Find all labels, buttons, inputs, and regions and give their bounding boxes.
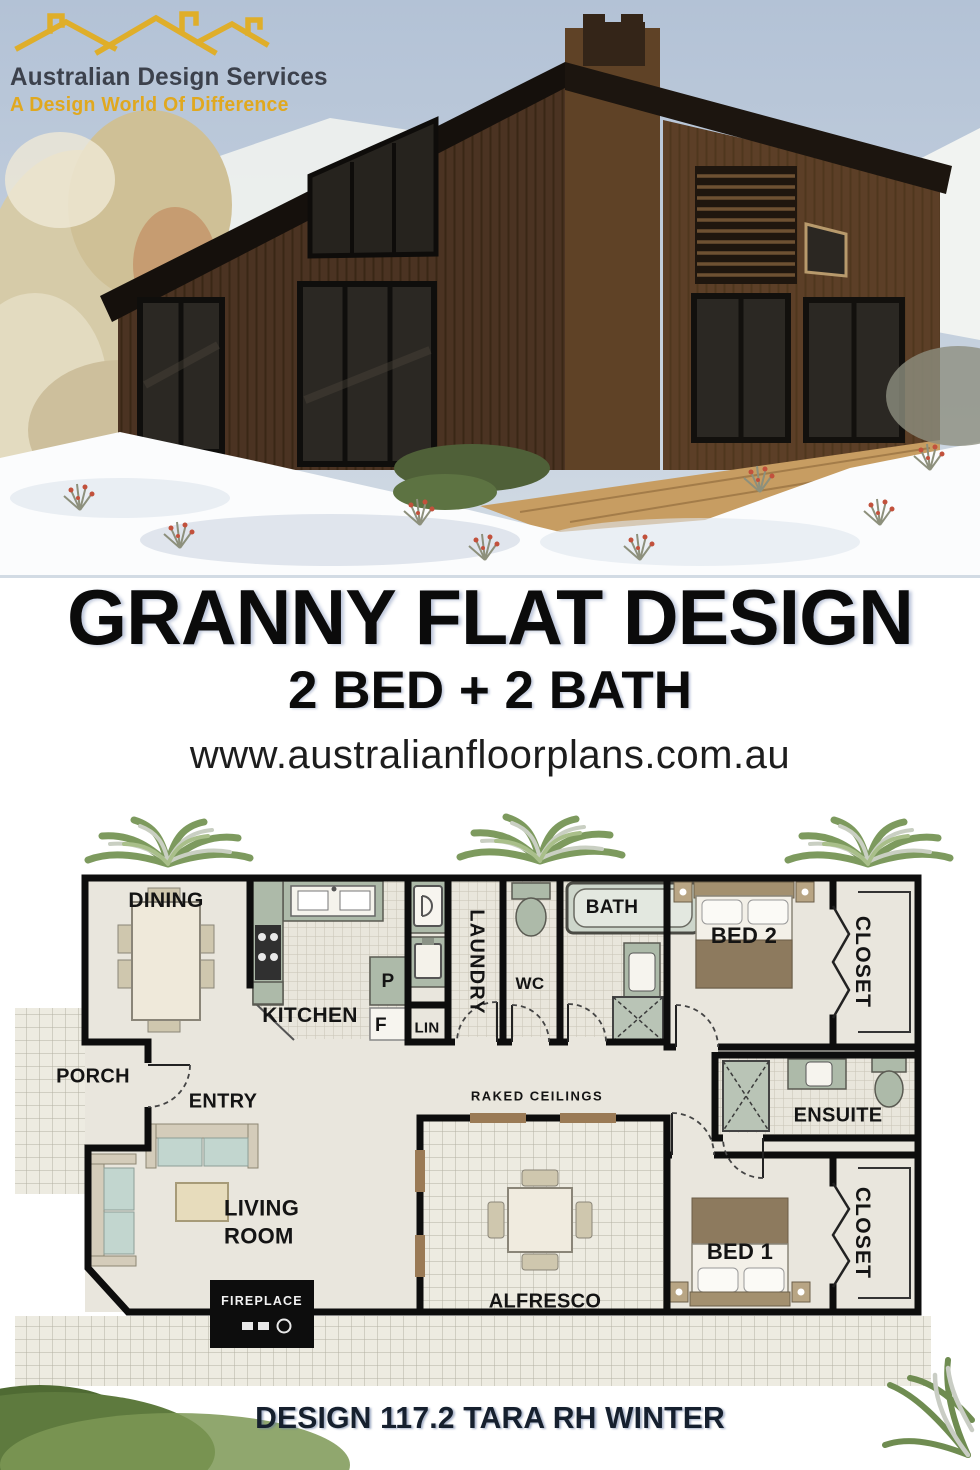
room-label-dining: DINING <box>128 889 203 913</box>
outdoor-paving <box>15 1316 931 1386</box>
laundry-tub <box>415 944 441 978</box>
small-window <box>806 224 846 276</box>
fireplace <box>210 1280 314 1348</box>
label-porch: PORCH <box>56 1066 130 1089</box>
room-label-wc: WC <box>516 974 545 994</box>
dryer <box>414 886 442 926</box>
slat-vent <box>695 166 797 284</box>
website-url: www.australianfloorplans.com.au <box>0 735 980 775</box>
ensuite-toilet <box>872 1058 906 1072</box>
poster-title: GRANNY FLAT DESIGN <box>5 578 975 656</box>
porch-slab <box>15 1008 85 1194</box>
sofa <box>90 1160 104 1260</box>
brand-logo: Australian Design Services A Design Worl… <box>10 6 340 117</box>
room-label-living: LIVING ROOM <box>224 1195 356 1250</box>
room-label-laundry: LAUNDRY <box>465 909 488 1014</box>
brand-tagline: A Design World Of Difference <box>10 94 330 117</box>
room-label-kitchen: KITCHEN <box>262 1004 357 1028</box>
poster: Australian Design Services A Design Worl… <box>0 0 980 1470</box>
room-label-bath: BATH <box>586 897 639 919</box>
label-closet-bed2: CLOSET <box>850 916 874 1008</box>
coffee-table <box>176 1183 228 1221</box>
room-label-ensuite: ENSUITE <box>794 1105 883 1128</box>
room-label-bed1: BED 1 <box>707 1239 773 1265</box>
sofa <box>150 1124 254 1138</box>
room-label-bed2: BED 2 <box>711 923 777 949</box>
label-fridge: F <box>375 1015 387 1037</box>
label-pantry: P <box>382 971 395 993</box>
label-entry: ENTRY <box>189 1091 258 1114</box>
label-closet-bed1: CLOSET <box>850 1187 874 1279</box>
label-linen: LIN <box>414 1020 439 1037</box>
rooflines-icon <box>10 6 280 58</box>
bath-shower <box>613 997 663 1041</box>
bath-vanity <box>624 943 660 1001</box>
poster-subtitle: 2 BED + 2 BATH <box>0 664 980 717</box>
design-code: DESIGN 117.2 TARA RH WINTER <box>15 1400 966 1436</box>
label-fireplace: FIREPLACE <box>221 1294 303 1308</box>
room-label-alfresco: ALFRESCO <box>489 1291 601 1314</box>
cooktop <box>255 925 281 980</box>
brand-name: Australian Design Services <box>10 63 330 92</box>
ceiling-note: RAKED CEILINGS <box>471 1089 603 1104</box>
